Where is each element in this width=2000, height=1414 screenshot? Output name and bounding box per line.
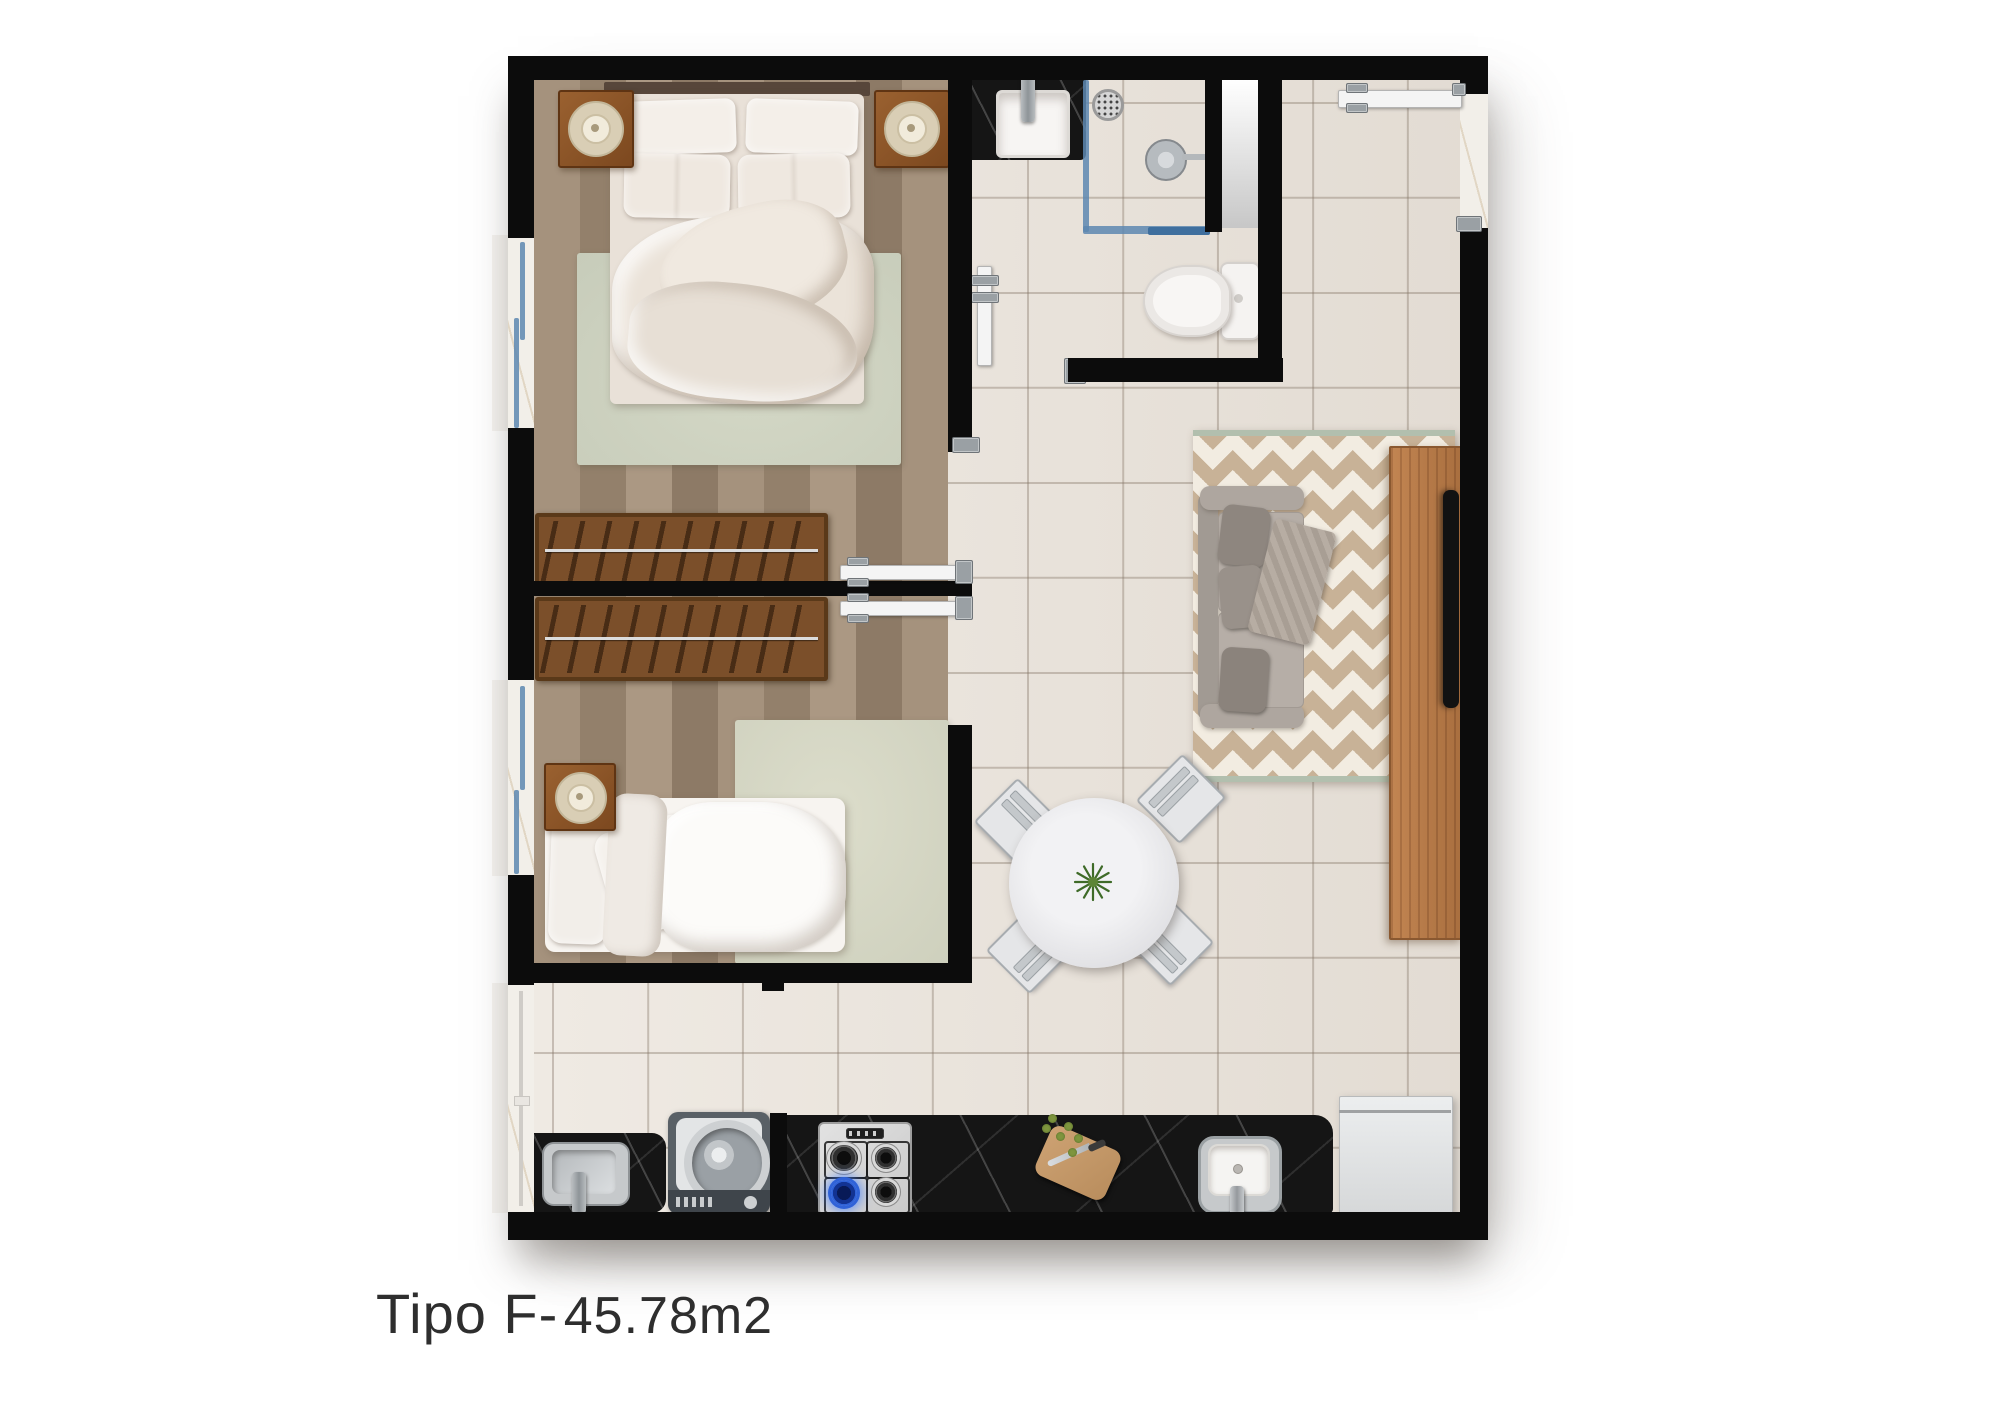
lamp-finial bbox=[576, 793, 583, 800]
nightstand bbox=[874, 90, 950, 168]
vegetable-slice bbox=[1056, 1132, 1065, 1141]
door-hinge-icon bbox=[955, 596, 973, 620]
entrance-threshold bbox=[1460, 94, 1488, 228]
wall-bedrooms-right-segment bbox=[948, 725, 972, 983]
door-hinge-icon bbox=[971, 275, 999, 286]
wardrobe-rail bbox=[545, 549, 818, 552]
vegetable-slice bbox=[1064, 1122, 1073, 1131]
laundry-faucet-icon bbox=[572, 1172, 586, 1214]
wall-kitchen-stub bbox=[770, 1113, 787, 1213]
lamp-finial bbox=[907, 124, 915, 132]
shower-glass-screen bbox=[1083, 80, 1089, 232]
apartment-plan bbox=[508, 56, 1488, 1240]
vegetable-slice bbox=[1042, 1124, 1051, 1133]
unit-type-label: Tipo F- bbox=[376, 1282, 558, 1345]
door-handle-icon bbox=[847, 614, 869, 623]
door-handle-icon bbox=[847, 593, 869, 602]
vegetable-slice bbox=[1048, 1114, 1057, 1123]
washer-knob bbox=[744, 1196, 757, 1209]
area-label: 45.78m2 bbox=[564, 1287, 773, 1345]
wall-door-stub bbox=[762, 975, 784, 991]
floor-plan-image: Tipo F- 45.78m2 bbox=[0, 0, 2000, 1414]
bed1-pillow bbox=[745, 98, 859, 156]
wardrobe-bedroom2 bbox=[535, 597, 828, 681]
exterior-sill bbox=[492, 680, 508, 876]
wardrobe-bedroom1 bbox=[535, 513, 828, 589]
nightstand bbox=[544, 763, 616, 831]
vegetable-slice bbox=[1068, 1148, 1077, 1157]
window-pane-icon bbox=[514, 790, 519, 874]
washer-agitator bbox=[704, 1140, 734, 1170]
wardrobe-rail bbox=[545, 637, 818, 640]
window-pane-icon bbox=[520, 686, 525, 790]
wall-bedroom2-bottom bbox=[534, 963, 972, 983]
shower-glass-door bbox=[1148, 227, 1210, 235]
exterior-sill bbox=[492, 983, 508, 1213]
wall-bathroom-partition bbox=[1205, 80, 1222, 232]
door-hinge-icon bbox=[1346, 103, 1368, 113]
bathroom-faucet-icon bbox=[1021, 74, 1035, 122]
wall-bedrooms-right-segment bbox=[948, 80, 972, 452]
wall-bathroom-bottom bbox=[1068, 358, 1283, 382]
cooktop-knobs bbox=[849, 1131, 881, 1136]
lamp-finial bbox=[591, 124, 599, 132]
wall-bedroom-divider bbox=[534, 581, 972, 596]
window-pane-icon bbox=[520, 242, 525, 340]
burner-lit-icon bbox=[831, 1180, 857, 1206]
plan-title: Tipo F- 45.78m2 bbox=[376, 1281, 773, 1346]
wall-left-segment bbox=[508, 56, 534, 238]
burner-icon bbox=[875, 1181, 897, 1203]
rug-border bbox=[1193, 430, 1455, 436]
bed1-pillow bbox=[623, 153, 730, 219]
door-hinge-icon bbox=[1456, 216, 1482, 232]
table-plant-icon bbox=[1069, 858, 1117, 906]
sofa-pillow bbox=[1218, 646, 1270, 713]
wall-bottom bbox=[508, 1212, 1488, 1240]
service-window-crossbar bbox=[514, 1096, 530, 1106]
door-hinge-icon bbox=[971, 292, 999, 303]
shower-drain-icon bbox=[1092, 89, 1124, 121]
burner-icon bbox=[875, 1147, 897, 1169]
exterior-sill bbox=[492, 235, 508, 431]
washer-buttons bbox=[676, 1197, 716, 1207]
refrigerator-door-line bbox=[1339, 1110, 1451, 1113]
shower-head-icon bbox=[1145, 139, 1187, 181]
wall-left-segment bbox=[508, 875, 534, 985]
door-hinge-icon bbox=[955, 560, 973, 584]
sink-drain-icon bbox=[1233, 1164, 1243, 1174]
sofa-back bbox=[1198, 494, 1218, 720]
door-handle-icon bbox=[847, 557, 869, 566]
sofa-pillow bbox=[1217, 503, 1272, 568]
tv-icon bbox=[1443, 490, 1459, 708]
wall-right bbox=[1460, 56, 1488, 1240]
door-hinge-icon bbox=[1346, 83, 1368, 93]
wall-bathroom-east bbox=[1258, 80, 1282, 382]
wall-top bbox=[508, 56, 1488, 80]
door-hinge-icon bbox=[952, 437, 980, 453]
window-pane-icon bbox=[514, 318, 519, 428]
door-hinge-icon bbox=[1452, 83, 1466, 96]
bed2-duvet bbox=[656, 802, 846, 952]
gas-cooktop bbox=[818, 1122, 912, 1216]
vegetable-slice bbox=[1074, 1134, 1083, 1143]
bathroom-niche-panel bbox=[1222, 80, 1258, 228]
toilet-bowl bbox=[1143, 265, 1231, 337]
nightstand bbox=[558, 90, 634, 168]
bed1-pillow bbox=[619, 98, 737, 156]
door-handle-icon bbox=[847, 578, 869, 587]
refrigerator bbox=[1339, 1096, 1453, 1214]
wall-left-segment bbox=[508, 428, 534, 680]
toilet-flush-button bbox=[1234, 294, 1243, 303]
burner-icon bbox=[830, 1145, 858, 1171]
